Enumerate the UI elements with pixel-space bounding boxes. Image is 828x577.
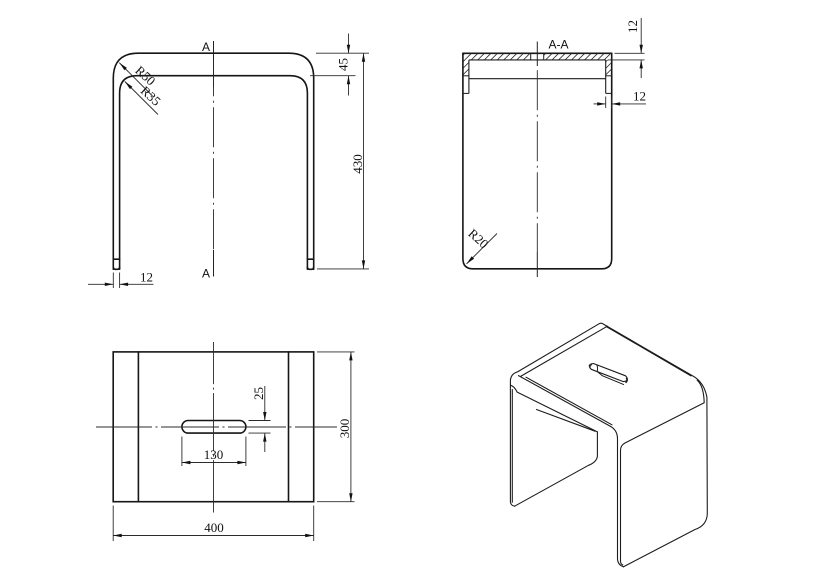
svg-text:25: 25: [251, 387, 266, 400]
svg-text:A: A: [202, 267, 210, 281]
svg-text:12: 12: [140, 270, 153, 285]
svg-text:430: 430: [350, 154, 365, 174]
svg-text:12: 12: [625, 20, 640, 33]
svg-text:45: 45: [336, 58, 351, 71]
svg-text:400: 400: [204, 520, 224, 535]
svg-text:300: 300: [337, 419, 352, 439]
svg-text:130: 130: [204, 447, 224, 462]
svg-text:A: A: [202, 40, 210, 54]
svg-text:12: 12: [633, 89, 646, 104]
svg-text:A-A: A-A: [549, 38, 569, 52]
